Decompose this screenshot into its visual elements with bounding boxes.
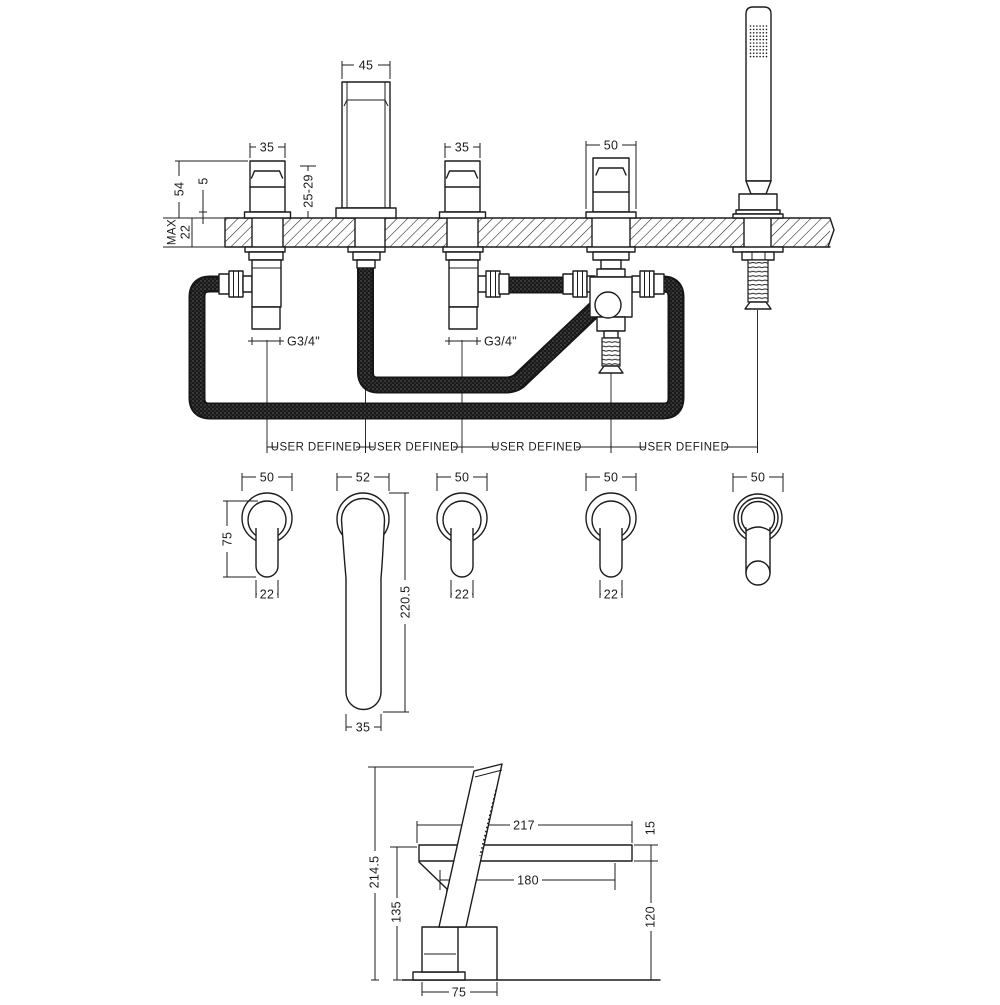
handset-holder: [739, 194, 777, 210]
handset-underdeck: [733, 247, 783, 309]
dim-deck-max-label: MAX: [167, 219, 179, 245]
dim-handle-width: 50: [604, 471, 619, 485]
dim-left-valve-width: 35: [260, 141, 275, 155]
neck: [601, 260, 621, 269]
compression-nut: [486, 271, 500, 297]
washer: [348, 247, 385, 252]
spout: [336, 82, 396, 218]
side-view: 217 15 180 214.5 135 120 75: [368, 764, 661, 1000]
locknut: [353, 252, 380, 260]
escutcheon-base: [733, 214, 783, 218]
handset-hose-tail: [748, 260, 768, 302]
dim-spout-length: 220.5: [399, 586, 413, 619]
shower-handset: [733, 7, 783, 218]
compression-nut: [573, 271, 587, 297]
dim-lever-width: 22: [604, 588, 619, 602]
washer: [443, 247, 483, 252]
base-plate: [413, 972, 465, 980]
body-bottom: [597, 317, 625, 331]
cold-valve: [440, 161, 486, 218]
hose-ferrule: [563, 274, 573, 294]
valve-flange: [440, 212, 486, 218]
valve-tail: [449, 307, 477, 329]
handset-grip-end: [746, 561, 770, 585]
dim-deck-max-value: 22: [179, 225, 193, 240]
front-port: [595, 292, 621, 318]
dim-body-height: 54: [173, 182, 187, 197]
dim-spout-tip: 35: [356, 721, 371, 735]
plan-views: 50 75 22 52 220.5 35 50: [221, 471, 784, 735]
compression-nut: [229, 271, 243, 297]
dim-handle-length: 75: [221, 532, 235, 547]
spacing-label-1: USER DEFINED: [271, 442, 361, 454]
dim-deck-range: 25-29: [302, 174, 316, 207]
dim-diverter-width: 50: [604, 139, 619, 153]
hose-flare: [745, 302, 771, 309]
spacing-label-2: USER DEFINED: [368, 442, 458, 454]
hose-union: [357, 260, 375, 268]
dim-total-height: 214.5: [368, 856, 382, 889]
dim-right-thread: G3/4": [484, 335, 517, 349]
bath-mixer-technical-drawing: 45 35 35 50 54 5 25-29 MAX: [0, 0, 1000, 1000]
side-geometry: [402, 764, 660, 980]
dim-left-thread: G3/4": [287, 335, 320, 349]
spout-plan: 52 220.5 35: [337, 471, 413, 735]
handle-lever: [256, 528, 278, 577]
hot-valve-underdeck: [219, 247, 285, 329]
dim-spout-thickness: 15: [644, 821, 658, 836]
dim-spout-plan-width: 52: [356, 471, 371, 485]
mixer-body: [422, 927, 458, 972]
deck: [225, 217, 834, 248]
dim-spout-length-side: 217: [513, 819, 535, 833]
inlet-port: [243, 276, 252, 292]
hose-flare: [599, 366, 623, 373]
shower-hose-tail: [602, 338, 620, 366]
body-top: [597, 269, 625, 277]
dim-handset-width: 50: [751, 471, 766, 485]
handset-plan: 50: [733, 471, 783, 586]
spout-underdeck: [348, 247, 385, 268]
valve-tail: [252, 307, 280, 329]
spout-body: [342, 82, 390, 208]
dim-handle-width: 50: [260, 471, 275, 485]
spout-flange: [336, 208, 396, 218]
hose-ferrule: [654, 274, 664, 294]
handset-taper: [746, 181, 771, 194]
technical-drawing-page: 45 35 35 50 54 5 25-29 MAX: [0, 0, 1000, 1000]
compression-nut: [640, 271, 654, 297]
dim-spout-height: 135: [390, 901, 404, 923]
spout-blade-side: [419, 845, 632, 861]
diverter-valve: [586, 158, 636, 218]
diverter-underdeck: [563, 247, 664, 373]
spacing-dimension: USER DEFINED USER DEFINED USER DEFINED U…: [267, 441, 758, 454]
diverter-cartridge: [593, 158, 629, 212]
dim-spout-width: 45: [359, 59, 374, 73]
locknut: [249, 252, 283, 260]
hose-ferrule: [499, 274, 509, 294]
hot-valve: [245, 161, 291, 218]
spacing-label-3: USER DEFINED: [491, 442, 581, 454]
dim-handle-width: 50: [455, 471, 470, 485]
dim-lever-width: 22: [260, 588, 275, 602]
locknut: [593, 252, 629, 260]
valve-body: [252, 260, 281, 307]
valve-flange: [245, 212, 291, 218]
dim-spout-clearance: 120: [644, 906, 658, 928]
handle-right-plan: 50 22: [586, 471, 636, 602]
valve-body: [449, 260, 478, 307]
spacing-label-4: USER DEFINED: [639, 442, 729, 454]
deck-hatch: [225, 218, 830, 247]
handle-lever: [600, 528, 622, 577]
locknut: [742, 252, 774, 260]
spout-blade: [342, 499, 385, 710]
washer: [587, 247, 635, 252]
shower-outlet-stub: [604, 331, 618, 338]
dim-flange-height: 5: [197, 177, 211, 184]
cold-valve-underdeck: [443, 247, 509, 329]
handle-left-plan: 50 75 22: [221, 471, 293, 602]
handle-lever: [451, 528, 473, 577]
dim-lever-width: 22: [455, 588, 470, 602]
washer: [245, 247, 285, 252]
installation-view: 45 35 35 50 54 5 25-29 MAX: [163, 7, 834, 454]
hose-ferrule: [219, 274, 229, 294]
locknut: [446, 252, 480, 260]
dim-right-valve-width: 35: [455, 141, 470, 155]
diverter-flange: [586, 212, 636, 218]
dim-spout-reach: 180: [517, 874, 539, 888]
washer: [733, 247, 783, 252]
installation-dimensions: 45 35 35 50 54 5 25-29 MAX: [163, 59, 636, 349]
handset-wand: [746, 7, 771, 181]
dim-body-depth: 75: [452, 986, 467, 1000]
handle-middle-plan: 50 22: [437, 471, 487, 602]
side-dimensions-lines: [368, 767, 658, 996]
